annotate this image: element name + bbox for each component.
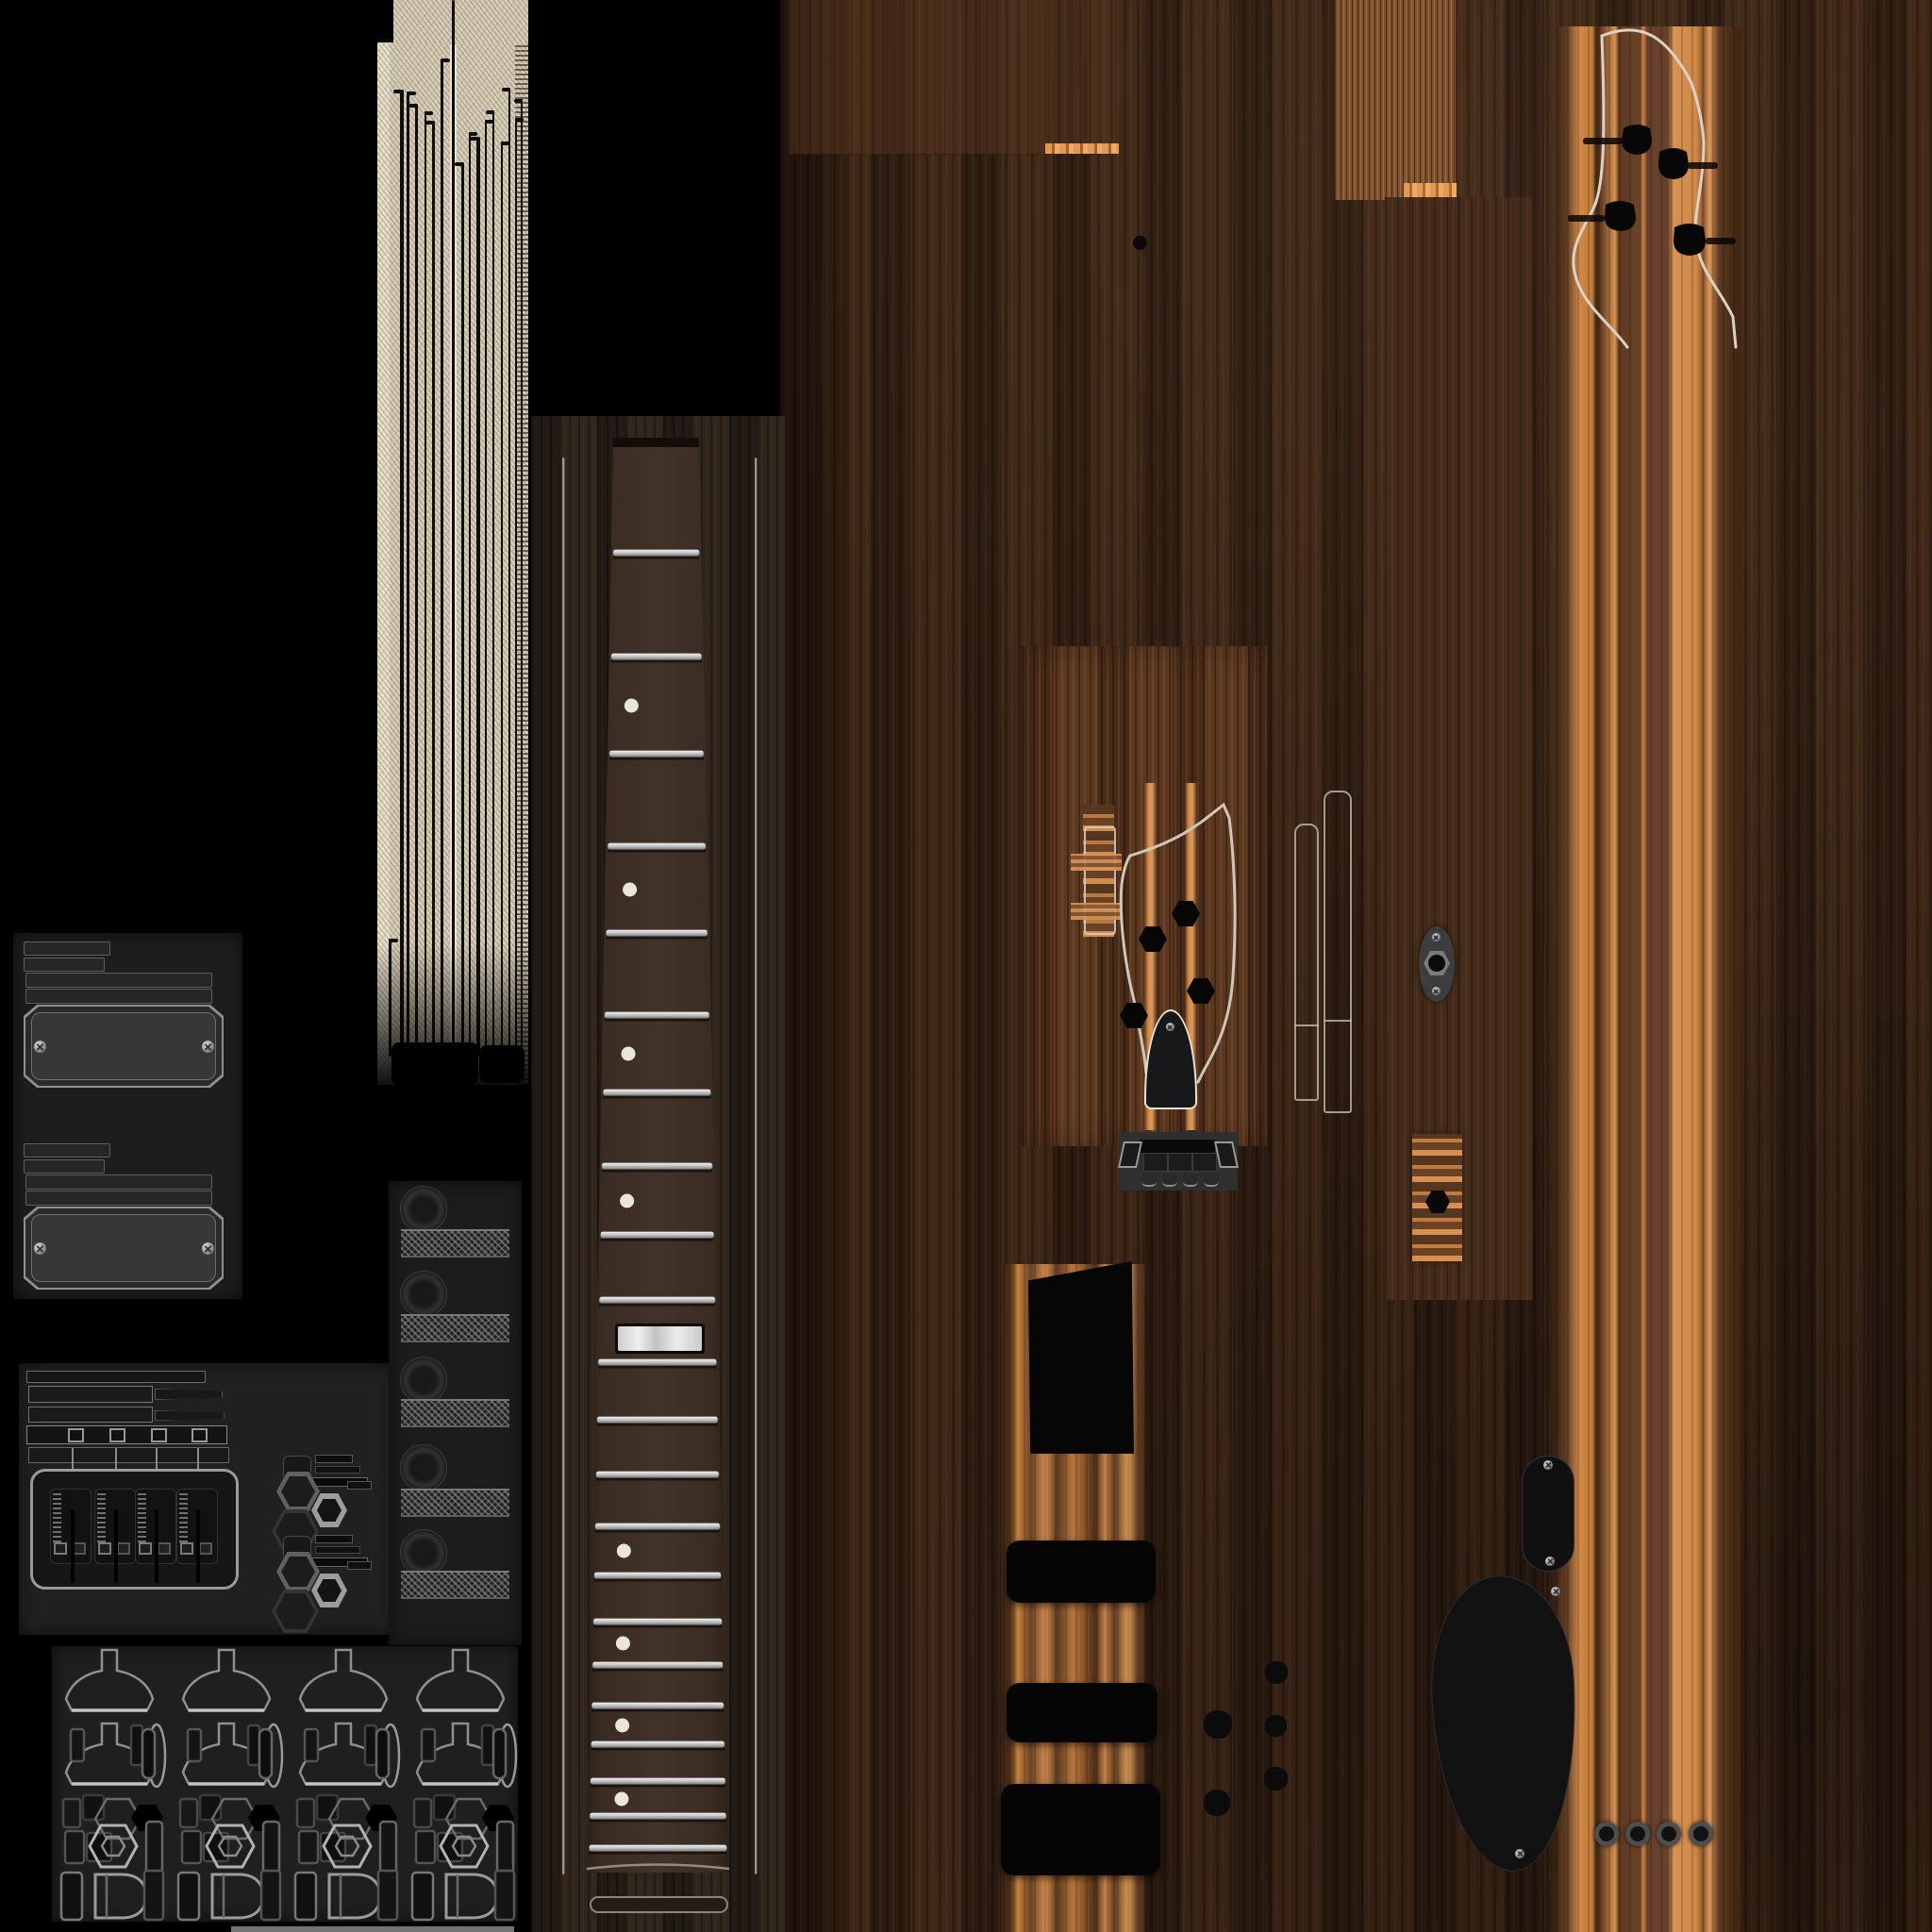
string-hook — [425, 121, 434, 125]
bridge-tab — [1162, 1174, 1177, 1187]
neck-seam-line — [1514, 197, 1515, 1300]
knob-top — [400, 1529, 447, 1576]
string-hook — [469, 132, 477, 136]
fretboard-svg — [531, 416, 785, 1932]
knob-top — [400, 1357, 447, 1404]
knob-knurl-bar — [401, 1229, 509, 1257]
knobs-panel — [389, 1181, 522, 1645]
pickup-cover-top — [31, 1012, 216, 1080]
tuner-post-shadow — [1568, 215, 1605, 222]
knob-knurl-bar — [401, 1314, 509, 1342]
pickguard-quad — [1028, 1261, 1134, 1454]
hex-nut-group — [272, 1453, 377, 1536]
saddle-spring — [138, 1493, 146, 1542]
tuning-machine-cluster — [52, 1646, 169, 1922]
retainer-outline — [1294, 824, 1319, 1101]
bridge-string-guide — [156, 1448, 158, 1469]
tuning-machine-cluster — [403, 1646, 520, 1922]
string — [508, 88, 510, 1057]
headstock-back-outline — [1555, 23, 1743, 362]
string — [485, 120, 487, 1057]
pot-hole — [1204, 1710, 1232, 1739]
bridge-plate-bar — [28, 1407, 153, 1423]
saddle-screw-box — [180, 1542, 193, 1555]
string — [441, 58, 443, 1057]
saddle-screw-box — [139, 1542, 152, 1555]
pickup-screw — [202, 1242, 214, 1255]
truss-cover-screw — [1166, 1023, 1174, 1031]
string-ferrule-hole — [1661, 1826, 1676, 1841]
pot-hole — [1264, 1767, 1288, 1790]
saddle-screw-box — [98, 1542, 111, 1555]
saddle-screw-box — [199, 1542, 212, 1555]
knob-knurl-bar — [401, 1489, 509, 1517]
hw-bar — [315, 1546, 360, 1554]
bridge-string-line — [114, 1509, 118, 1583]
pickup-base-bar — [24, 958, 105, 972]
knob-knurl-bar — [401, 1571, 509, 1599]
bridge-plate-wedge — [155, 1410, 225, 1421]
pickup-base-bar — [25, 989, 212, 1004]
strings-top-block — [393, 0, 528, 44]
pill-screw — [1543, 1460, 1553, 1470]
strings-sheet — [375, 0, 528, 1087]
pot-hole — [1204, 1790, 1230, 1816]
orange-endgrain-bar-a — [1045, 143, 1119, 154]
small-black-dot — [1133, 236, 1147, 250]
hw-bar — [315, 1455, 353, 1463]
bottom-gray-strip — [231, 1926, 514, 1932]
tuner-button — [1605, 201, 1636, 231]
saddle-screw-box — [117, 1542, 130, 1555]
string-hook — [502, 88, 510, 92]
saddle-screw-box — [54, 1542, 67, 1555]
tuner-button — [1674, 224, 1706, 256]
pickup-screw — [202, 1041, 214, 1053]
string-hook — [390, 939, 398, 942]
tuner-post-shadow — [1583, 138, 1623, 144]
string — [407, 92, 409, 1057]
string — [461, 162, 464, 1057]
retainer-line — [1324, 1020, 1352, 1022]
string — [425, 111, 426, 1057]
string — [501, 142, 503, 1057]
tuner-button — [1658, 148, 1689, 179]
string-hook — [393, 90, 402, 93]
striped-wood-rect — [1335, 0, 1456, 200]
bridge-plate-wedge — [155, 1389, 223, 1400]
pickup-screw — [34, 1242, 46, 1255]
string — [515, 118, 517, 1057]
tuner-post-shadow — [1706, 238, 1736, 244]
retainer-outline — [1324, 791, 1352, 1113]
saddle-spring — [53, 1493, 61, 1542]
bridge-string-line — [71, 1509, 75, 1583]
pill-screw — [1545, 1557, 1555, 1566]
pickup-covers-panel — [13, 933, 242, 1299]
string — [521, 99, 523, 1057]
bridge-string-guide — [197, 1448, 199, 1469]
tuning-machine-cluster — [169, 1646, 286, 1922]
bridge-saddle-block — [1143, 1153, 1168, 1172]
strings-ballend-blob — [479, 1045, 525, 1083]
knob-knurl-bar — [401, 1399, 509, 1427]
hw-bar — [347, 1481, 372, 1490]
pickup-base-bar — [25, 973, 212, 988]
string-hook — [408, 104, 417, 108]
pill-cover — [1522, 1456, 1574, 1572]
bridge-plate-bar — [26, 1371, 206, 1383]
texture-atlas — [0, 0, 1932, 1932]
pickup-cover-top — [31, 1214, 216, 1282]
bridge-unit — [1119, 1132, 1238, 1191]
pickup-base-bar — [25, 1191, 212, 1206]
string-hook — [408, 92, 416, 95]
string-ferrule-hole — [1599, 1826, 1614, 1841]
fretboard-board — [562, 438, 757, 1874]
pot-hole — [1265, 1715, 1287, 1737]
bridge-bar — [1140, 1140, 1215, 1153]
cavity-screw — [1515, 1849, 1524, 1858]
pickup-base-bar — [25, 1174, 212, 1190]
tuners-panel — [52, 1646, 518, 1922]
string-ferrule-hole — [1693, 1826, 1708, 1841]
bridge-tab — [1183, 1174, 1198, 1187]
retainer-line — [1294, 1024, 1319, 1026]
bridge-plate-bar — [28, 1447, 229, 1463]
string-hook — [441, 58, 450, 62]
tuner-button — [1622, 125, 1652, 155]
string-hook — [486, 110, 494, 114]
bridge-tab — [1141, 1174, 1157, 1187]
knob-top — [400, 1271, 447, 1318]
string — [432, 121, 435, 1057]
string-hook — [470, 137, 478, 141]
string-ferrule-hole — [1630, 1826, 1645, 1841]
pickup-base-bar — [24, 941, 110, 956]
body-pickup — [1001, 1784, 1160, 1875]
bridge-wing-left — [1118, 1141, 1142, 1168]
fretboard-end-bar — [590, 1896, 728, 1913]
bridge-saddle-block — [1192, 1153, 1217, 1172]
string-hook — [455, 162, 463, 166]
jack-screw — [1432, 987, 1441, 995]
hex-nut-group — [272, 1533, 377, 1616]
saddle-screw-box — [158, 1542, 171, 1555]
body-pickup — [1007, 1683, 1158, 1742]
string-hook — [514, 99, 523, 103]
hw-bar — [315, 1535, 353, 1543]
string — [469, 132, 471, 1057]
bridge-string-guide — [72, 1448, 74, 1469]
string — [492, 110, 494, 1057]
knob-top — [400, 1186, 447, 1233]
body-pickup — [1007, 1541, 1156, 1603]
cavity-screw — [1551, 1587, 1560, 1596]
bridge-wing-right — [1214, 1141, 1239, 1168]
string — [452, 0, 455, 1057]
hw-bar — [347, 1561, 372, 1570]
tuning-machine-cluster — [286, 1646, 403, 1922]
pot-hole — [1265, 1661, 1288, 1684]
string — [415, 104, 418, 1057]
jack-screw — [1432, 933, 1441, 941]
bridge-notch-square — [109, 1428, 125, 1442]
bridge-string-guide — [115, 1448, 117, 1469]
saddle-screw-box — [73, 1542, 86, 1555]
pickup-screw — [34, 1041, 46, 1053]
string — [400, 90, 404, 1057]
bridge-saddle-block — [1168, 1153, 1192, 1172]
saddle-spring — [97, 1493, 106, 1542]
top-light-wood-block — [789, 0, 1115, 155]
bridge-notch-square — [68, 1428, 84, 1442]
string — [476, 137, 480, 1057]
jack-hole — [1428, 955, 1445, 972]
pickup-base-bar — [24, 1143, 110, 1158]
bridge-plate-bar — [28, 1386, 153, 1403]
string-hook — [425, 111, 433, 115]
bridge-string-line — [196, 1509, 200, 1583]
saddle-spring — [179, 1493, 188, 1542]
strings-ballend-blob — [391, 1042, 478, 1085]
bridge-string-line — [155, 1509, 158, 1583]
body-wood-shade-corner — [780, 0, 1932, 1932]
bridge-notch-square — [151, 1428, 167, 1442]
bridge-notch-square — [192, 1428, 208, 1442]
knob-top — [400, 1444, 447, 1491]
pickup-base-bar — [24, 1159, 105, 1174]
bridge-tab — [1204, 1174, 1219, 1187]
hw-bar — [315, 1466, 360, 1474]
tuner-post-shadow — [1688, 162, 1718, 169]
